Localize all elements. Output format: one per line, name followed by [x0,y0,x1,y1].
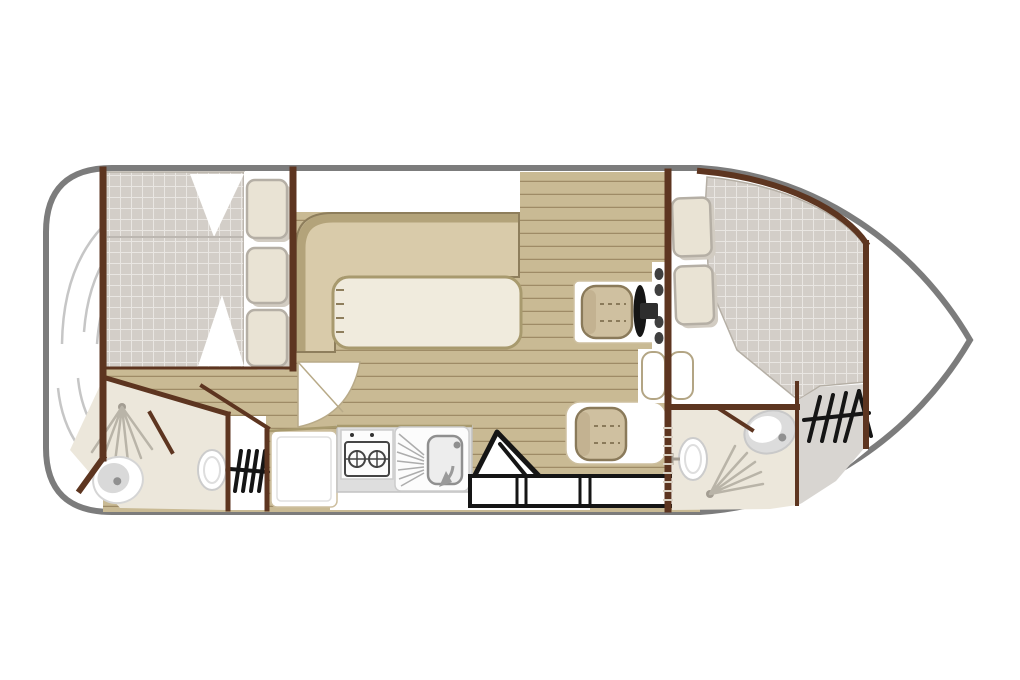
dinette [566,402,666,464]
aft-bed-pillows [247,180,291,370]
floor-plan-canvas [0,0,1020,680]
sink-icon [395,427,469,491]
boat-floor-plan [0,0,1020,680]
storage-locker [470,476,697,506]
helm-seat [582,286,632,338]
saloon-side [295,172,520,212]
aft-cabin [104,172,293,370]
fridge [271,431,337,507]
stove-icon [341,430,393,479]
saloon-table [333,277,521,348]
dinette-seat [576,408,626,460]
foredeck [798,384,871,505]
